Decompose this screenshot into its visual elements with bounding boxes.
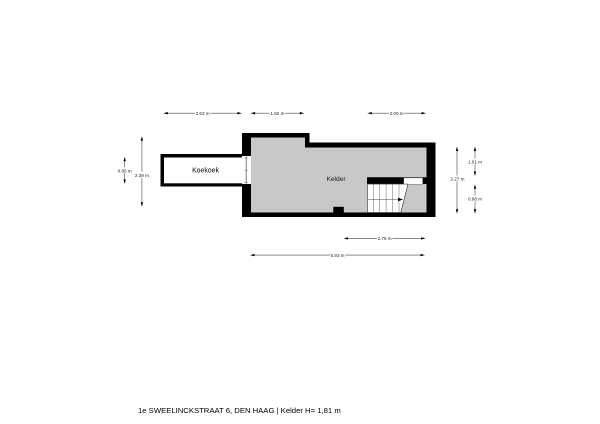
svg-text:2.78 m: 2.78 m	[378, 236, 392, 241]
svg-text:1.82 m: 1.82 m	[270, 111, 284, 116]
svg-text:0.98 m: 0.98 m	[468, 196, 482, 201]
svg-text:1.01 m: 1.01 m	[468, 159, 482, 164]
svg-text:0.95 m: 0.95 m	[118, 168, 132, 173]
svg-text:2.63 m: 2.63 m	[196, 111, 210, 116]
svg-text:Koekoek: Koekoek	[192, 168, 219, 175]
svg-text:1e SWEELINCKSTRAAT 6, DEN HAAG: 1e SWEELINCKSTRAAT 6, DEN HAAG | Kelder …	[138, 406, 341, 415]
svg-text:5.93 m: 5.93 m	[330, 253, 344, 258]
svg-text:2.39 m: 2.39 m	[135, 173, 149, 178]
svg-text:2.27 m: 2.27 m	[450, 177, 464, 182]
svg-text:2.00 m: 2.00 m	[390, 111, 404, 116]
svg-text:Kelder: Kelder	[326, 176, 346, 183]
